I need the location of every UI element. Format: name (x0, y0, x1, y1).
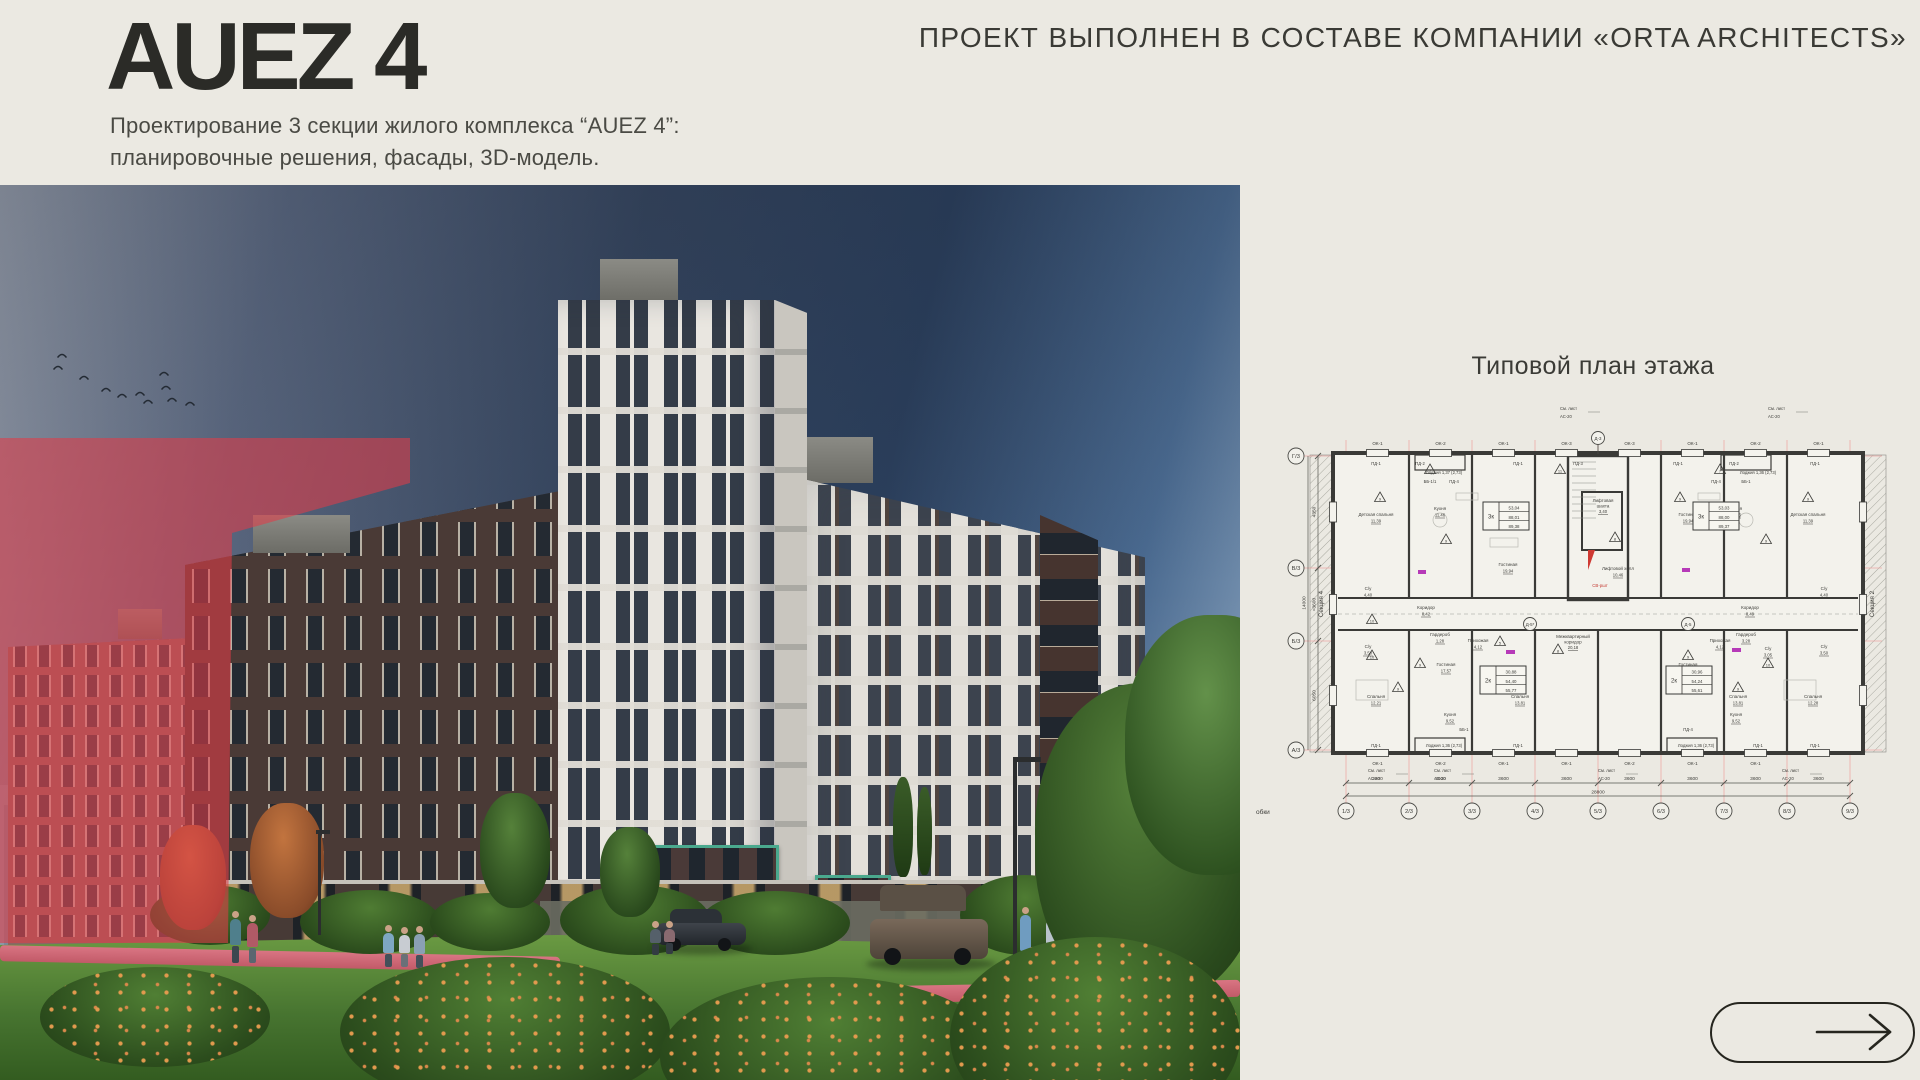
next-slide-button[interactable] (1710, 1002, 1915, 1063)
svg-text:19,94: 19,94 (1503, 569, 1514, 574)
svg-text:11,39: 11,39 (1803, 519, 1814, 524)
cypress-tree (917, 787, 932, 875)
svg-text:Лифтовой холл: Лифтовой холл (1602, 565, 1634, 571)
svg-text:10,46: 10,46 (1613, 573, 1624, 578)
svg-text:ОК-1: ОК-1 (1498, 441, 1509, 446)
svg-text:ОК-2: ОК-2 (1624, 761, 1635, 766)
street-lamp (1013, 757, 1017, 972)
svg-text:ПД-1: ПД-1 (1513, 743, 1523, 748)
cypress-tree (893, 777, 913, 877)
svg-text:ОК-1: ОК-1 (1750, 761, 1761, 766)
svg-text:89,38: 89,38 (1509, 524, 1521, 529)
svg-text:11,39: 11,39 (1371, 519, 1382, 524)
svg-text:ОК-1: ОК-1 (1813, 441, 1824, 446)
svg-text:ПД-3: ПД-3 (1573, 461, 1583, 466)
tree (480, 793, 550, 908)
svg-text:3600: 3600 (1750, 776, 1761, 782)
svg-text:4,12: 4,12 (1474, 645, 1483, 650)
svg-text:В/3: В/3 (1292, 566, 1301, 572)
svg-text:Спальня: Спальня (1804, 694, 1823, 699)
svg-text:ББ-1: ББ-1 (1741, 479, 1751, 484)
svg-text:Д-5: Д-5 (1685, 622, 1692, 627)
svg-text:Секция 2: Секция 2 (1869, 590, 1876, 617)
page-title: AUEZ 4 (106, 2, 423, 112)
svg-text:10: 10 (1370, 619, 1375, 624)
right-building-penthouse (807, 437, 873, 483)
svg-text:4/3: 4/3 (1531, 809, 1539, 815)
svg-text:2/3: 2/3 (1405, 809, 1413, 815)
svg-text:28800: 28800 (1591, 790, 1605, 796)
svg-text:ОК-2: ОК-2 (1435, 441, 1446, 446)
svg-text:30,88: 30,88 (1506, 670, 1518, 675)
svg-text:4,12: 4,12 (1716, 645, 1725, 650)
svg-text:Прихожая: Прихожая (1710, 638, 1731, 643)
svg-text:Детская спальня: Детская спальня (1790, 512, 1826, 517)
tower-side-facade (775, 300, 807, 945)
svg-text:С/у: С/у (1765, 646, 1773, 651)
svg-text:2к: 2к (1671, 679, 1677, 685)
svg-text:3600: 3600 (1561, 776, 1572, 782)
svg-text:Кухня: Кухня (1730, 712, 1743, 717)
person (247, 915, 258, 963)
person (664, 921, 675, 954)
svg-text:Спальня: Спальня (1367, 694, 1386, 699)
svg-text:3600: 3600 (1687, 776, 1698, 782)
svg-text:7/3: 7/3 (1720, 809, 1728, 815)
svg-text:6/3: 6/3 (1657, 809, 1665, 815)
svg-text:4350: 4350 (1312, 506, 1318, 517)
svg-text:См. лист: См. лист (1782, 768, 1799, 773)
suv-car (870, 885, 988, 965)
svg-text:Прихожая: Прихожая (1468, 638, 1489, 643)
svg-text:11,46: 11,46 (1435, 513, 1446, 518)
floor-plan-drawing: ОК-1ОК-2ОК-1ОК-3ОК-3ОК-1ОК-2ОК-1ОК-1ОК-2… (1268, 398, 1918, 830)
svg-text:С/у: С/у (1821, 644, 1829, 649)
svg-text:ПД-4: ПД-4 (1711, 479, 1721, 484)
svg-text:С/у: С/у (1821, 586, 1829, 591)
svg-text:ОК-2: ОК-2 (1435, 761, 1446, 766)
svg-text:ПД-1: ПД-1 (1513, 461, 1523, 466)
svg-text:С/у: С/у (1365, 644, 1373, 649)
svg-text:14000: 14000 (1302, 596, 1308, 610)
arrow-right-icon (1813, 1004, 1897, 1060)
svg-text:8,42: 8,42 (1422, 612, 1431, 617)
street-lamp (318, 830, 321, 935)
svg-text:88,00: 88,00 (1719, 515, 1731, 520)
tower-penthouse (600, 259, 678, 303)
svg-text:ОК-1: ОК-1 (1372, 761, 1383, 766)
svg-text:89,37: 89,37 (1719, 524, 1731, 529)
svg-text:ББ-1/1: ББ-1/1 (1424, 479, 1437, 484)
person (383, 925, 394, 967)
svg-text:3к: 3к (1488, 515, 1494, 521)
svg-text:30,96: 30,96 (1692, 670, 1704, 675)
svg-text:АС-20: АС-20 (1598, 776, 1610, 781)
svg-text:3,40: 3,40 (1599, 509, 1608, 514)
svg-text:10: 10 (1766, 663, 1771, 668)
svg-text:19,94: 19,94 (1683, 519, 1694, 524)
svg-text:54,40: 54,40 (1506, 679, 1518, 684)
svg-text:Лоджия 1,36 (2,73): Лоджия 1,36 (2,73) (1740, 470, 1777, 475)
svg-text:ОК-1: ОК-1 (1372, 441, 1383, 446)
svg-text:Секция 4: Секция 4 (1318, 590, 1325, 617)
svg-text:АС-20: АС-20 (1782, 776, 1794, 781)
svg-text:АС-20: АС-20 (1560, 414, 1572, 419)
svg-text:См. лист: См. лист (1768, 406, 1785, 411)
svg-text:3,50: 3,50 (1820, 651, 1829, 656)
svg-text:ОК-3: ОК-3 (1624, 441, 1635, 446)
svg-text:Гостиная: Гостиная (1437, 662, 1456, 667)
svg-text:13,81: 13,81 (1733, 701, 1744, 706)
subtitle-line-2: планировочные решения, фасады, 3D-модель… (110, 142, 680, 174)
svg-text:Кухня: Кухня (1444, 712, 1457, 717)
svg-text:3600: 3600 (1813, 776, 1824, 782)
svg-text:10: 10 (1370, 655, 1375, 660)
svg-text:12,21: 12,21 (1371, 701, 1382, 706)
street-lamp (316, 830, 330, 834)
svg-text:коридор: коридор (1564, 640, 1582, 645)
svg-text:АС-20: АС-20 (1768, 414, 1780, 419)
svg-text:ПД-1: ПД-1 (1673, 461, 1683, 466)
svg-text:ОК-1: ОК-1 (1687, 441, 1698, 446)
svg-text:Спальня: Спальня (1729, 694, 1748, 699)
svg-text:6050: 6050 (1312, 690, 1318, 701)
svg-text:ПД-4: ПД-4 (1449, 479, 1459, 484)
svg-text:Лоджия 1,36 (2,73): Лоджия 1,36 (2,73) (1678, 743, 1715, 748)
subtitle-line-1: Проектирование 3 секции жилого комплекса… (110, 110, 680, 142)
svg-text:ПД-4: ПД-4 (1683, 727, 1693, 732)
building-render-photo (0, 185, 1240, 1080)
svg-text:ПД-2: ПД-2 (1729, 461, 1739, 466)
person (230, 911, 241, 963)
svg-text:ОК-1: ОК-1 (1687, 761, 1698, 766)
svg-text:3к: 3к (1698, 515, 1704, 521)
svg-text:ББ-1: ББ-1 (1459, 727, 1469, 732)
person (414, 926, 425, 968)
svg-text:ОК-1: ОК-1 (1561, 761, 1572, 766)
svg-text:ПД-1: ПД-1 (1371, 461, 1381, 466)
svg-text:С/у: С/у (1365, 586, 1373, 591)
svg-text:Межквартирный: Межквартирный (1556, 633, 1590, 639)
svg-text:Б/3: Б/3 (1292, 639, 1301, 645)
svg-text:Кухня: Кухня (1434, 506, 1447, 511)
svg-text:20,18: 20,18 (1568, 645, 1579, 650)
svg-text:3/3: 3/3 (1468, 809, 1476, 815)
svg-text:3,28: 3,28 (1742, 639, 1751, 644)
svg-text:54,24: 54,24 (1692, 679, 1704, 684)
svg-text:55,77: 55,77 (1506, 688, 1518, 693)
svg-text:2к: 2к (1485, 679, 1491, 685)
floor-plan-title: Типовой план этажа (1268, 352, 1918, 381)
svg-text:13,81: 13,81 (1515, 701, 1526, 706)
svg-text:ОК-1: ОК-1 (1498, 761, 1509, 766)
svg-text:А/3: А/3 (1292, 748, 1301, 754)
svg-text:Коридор: Коридор (1741, 605, 1759, 610)
svg-text:55,61: 55,61 (1692, 688, 1704, 693)
svg-text:3600: 3600 (1624, 776, 1635, 782)
svg-text:17,57: 17,57 (1441, 669, 1452, 674)
svg-text:4,40: 4,40 (1820, 593, 1829, 598)
svg-text:См. лист: См. лист (1598, 768, 1615, 773)
svg-text:Д-5*: Д-5* (1526, 622, 1535, 627)
svg-text:Д-3: Д-3 (1595, 436, 1602, 441)
flower-bush (40, 967, 270, 1067)
svg-text:шахта: шахта (1597, 504, 1610, 509)
svg-text:Лоджия 1,37 (2,73): Лоджия 1,37 (2,73) (1426, 470, 1463, 475)
person (650, 921, 661, 955)
svg-text:8/3: 8/3 (1783, 809, 1791, 815)
svg-text:3600: 3600 (1372, 776, 1383, 782)
svg-text:ОК-2: ОК-2 (1750, 441, 1761, 446)
svg-text:1/3: 1/3 (1342, 809, 1350, 815)
svg-text:ПД-1: ПД-1 (1810, 743, 1820, 748)
svg-text:Детская спальня: Детская спальня (1358, 512, 1394, 517)
svg-text:88,01: 88,01 (1509, 515, 1521, 520)
svg-text:обки: обки (1256, 808, 1270, 816)
svg-text:ПД-1: ПД-1 (1810, 461, 1820, 466)
svg-text:См. лист: См. лист (1368, 768, 1385, 773)
svg-text:12,28: 12,28 (1808, 701, 1819, 706)
svg-text:9,52: 9,52 (1732, 719, 1741, 724)
svg-text:5/3: 5/3 (1594, 809, 1602, 815)
birds-icon (40, 345, 220, 425)
svg-text:53,04: 53,04 (1509, 506, 1521, 511)
svg-text:Лоджия 1,36 (2,73): Лоджия 1,36 (2,73) (1426, 743, 1463, 748)
street-lamp (1013, 757, 1041, 762)
svg-text:3,05: 3,05 (1764, 653, 1773, 658)
svg-text:См. лист: См. лист (1560, 406, 1577, 411)
svg-text:СВ-ршт: СВ-ршт (1592, 583, 1608, 588)
svg-text:≈3600: ≈3600 (1312, 598, 1318, 612)
svg-text:Гостиная: Гостиная (1499, 562, 1518, 567)
svg-text:3600: 3600 (1498, 776, 1509, 782)
svg-text:Лифтовая: Лифтовая (1593, 498, 1614, 503)
svg-text:ПД-1: ПД-1 (1371, 743, 1381, 748)
svg-text:4,40: 4,40 (1364, 593, 1373, 598)
svg-text:53,03: 53,03 (1719, 506, 1731, 511)
svg-text:8,49: 8,49 (1746, 612, 1755, 617)
svg-text:ОК-3: ОК-3 (1561, 441, 1572, 446)
svg-text:Спальня: Спальня (1511, 694, 1530, 699)
tree (250, 803, 324, 918)
svg-text:ПД-2: ПД-2 (1415, 461, 1425, 466)
svg-text:Гардероб: Гардероб (1430, 632, 1450, 637)
svg-text:1,28: 1,28 (1436, 639, 1445, 644)
company-note: ПРОЕКТ ВЫПОЛНЕН В СОСТАВЕ КОМПАНИИ «ORTA… (919, 22, 1907, 54)
svg-text:Коридор: Коридор (1417, 605, 1435, 610)
svg-text:Г/3: Г/3 (1292, 454, 1300, 460)
svg-text:ПД-1: ПД-1 (1753, 743, 1763, 748)
person (399, 927, 410, 967)
svg-text:9/3: 9/3 (1846, 809, 1854, 815)
tree (600, 827, 660, 917)
project-subtitle: Проектирование 3 секции жилого комплекса… (110, 110, 680, 174)
svg-text:9,52: 9,52 (1446, 719, 1455, 724)
svg-text:См. лист: См. лист (1434, 768, 1451, 773)
svg-text:Гардероб: Гардероб (1736, 632, 1756, 637)
svg-text:3600: 3600 (1435, 776, 1446, 782)
